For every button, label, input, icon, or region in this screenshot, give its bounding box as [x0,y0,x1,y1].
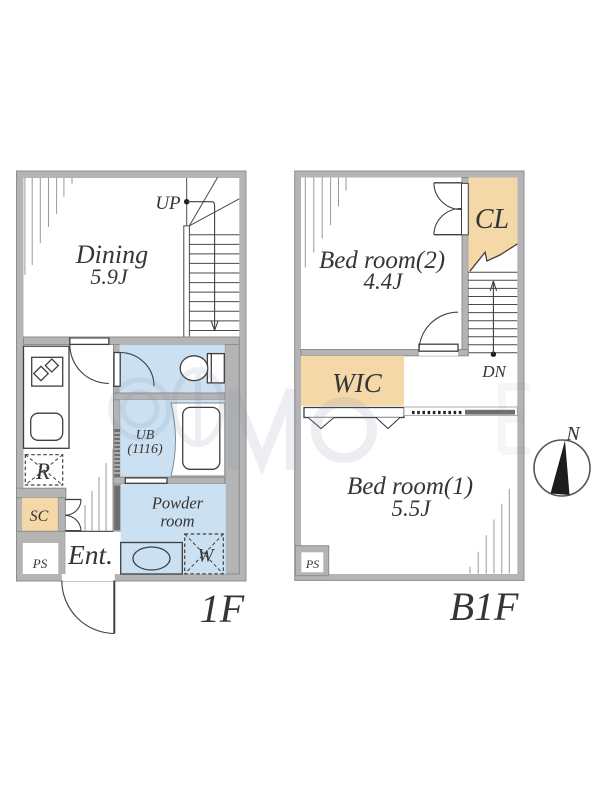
svg-text:1F: 1F [200,586,245,631]
svg-text:W: W [198,546,216,567]
svg-text:DN: DN [481,362,507,381]
svg-text:CL: CL [475,204,509,235]
svg-text:PS: PS [32,556,48,571]
svg-text:UP: UP [155,193,181,214]
svg-text:WIC: WIC [332,368,382,398]
svg-text:R: R [35,459,50,484]
svg-text:B1F: B1F [450,584,519,629]
svg-text:5.9J: 5.9J [90,264,129,289]
svg-text:(1116): (1116) [127,442,163,457]
svg-text:5.5J: 5.5J [392,496,433,521]
svg-text:SC: SC [30,508,49,525]
svg-text:Ent.: Ent. [67,539,113,570]
svg-text:room: room [160,512,194,531]
svg-text:N: N [565,423,581,445]
svg-text:PS: PS [305,557,319,571]
svg-text:Powder: Powder [151,494,204,513]
svg-text:4.4J: 4.4J [364,269,405,294]
